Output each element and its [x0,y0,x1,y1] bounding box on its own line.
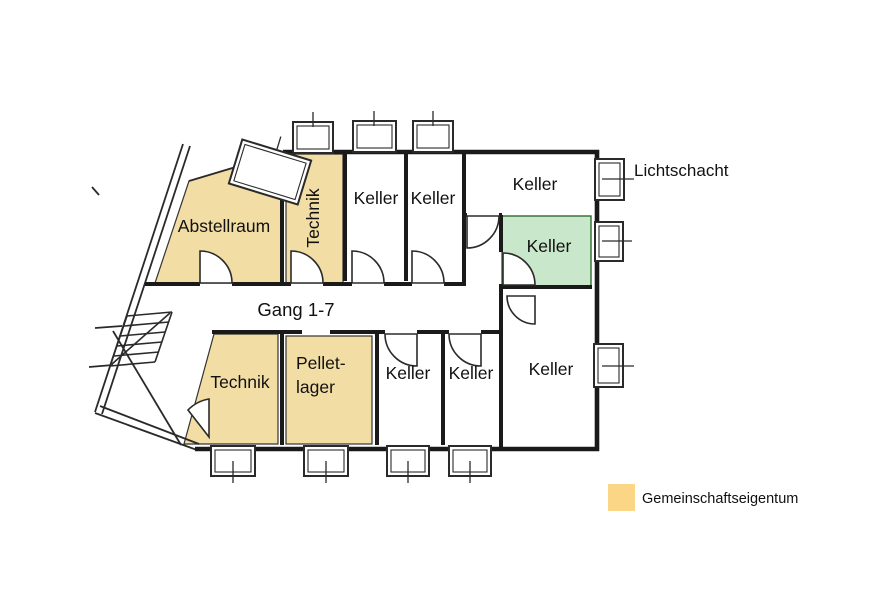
light-shaft-top-1 [293,112,333,153]
label-technik-bottom: Technik [210,372,270,392]
label-keller-highlighted: Keller [527,236,572,256]
legend-swatch [608,484,635,511]
door-keller-top-2 [412,251,444,283]
light-shaft-bottom-4 [449,446,491,483]
label-keller-top-2: Keller [411,188,456,208]
door-keller-bottom-large [507,296,535,324]
floorplan-svg: Abstellraum Technik Keller Keller Keller… [0,0,877,602]
door-keller-bottom-2 [449,334,481,366]
light-shaft-bottom-3 [387,446,429,483]
legend: Gemeinschaftseigentum [608,484,798,511]
label-keller-bottom-large: Keller [529,359,574,379]
label-pelletlager-2: lager [296,377,335,397]
light-shaft-right-1 [595,159,634,200]
label-keller-top-1: Keller [354,188,399,208]
light-shaft-right-3 [594,344,634,387]
label-gang: Gang 1-7 [257,299,334,320]
label-abstellraum: Abstellraum [178,216,270,236]
label-pelletlager-1: Pellet- [296,353,346,373]
label-keller-top-large: Keller [513,174,558,194]
light-shaft-top-3 [413,111,453,152]
door-keller-top-large [467,216,499,248]
label-technik-top: Technik [303,188,323,248]
label-keller-bottom-1: Keller [386,363,431,383]
door-keller-top-1 [352,251,384,283]
light-shaft-bottom-1 [211,446,255,483]
light-shaft-top-2 [353,111,396,152]
door-keller-bottom-1 [385,334,417,366]
label-lichtschacht: Lichtschacht [634,161,729,180]
light-shaft-right-2 [595,222,632,261]
floorplan-basement: Abstellraum Technik Keller Keller Keller… [0,0,877,602]
light-shaft-bottom-2 [304,446,348,483]
legend-label: Gemeinschaftseigentum [642,491,798,507]
label-keller-bottom-2: Keller [449,363,494,383]
